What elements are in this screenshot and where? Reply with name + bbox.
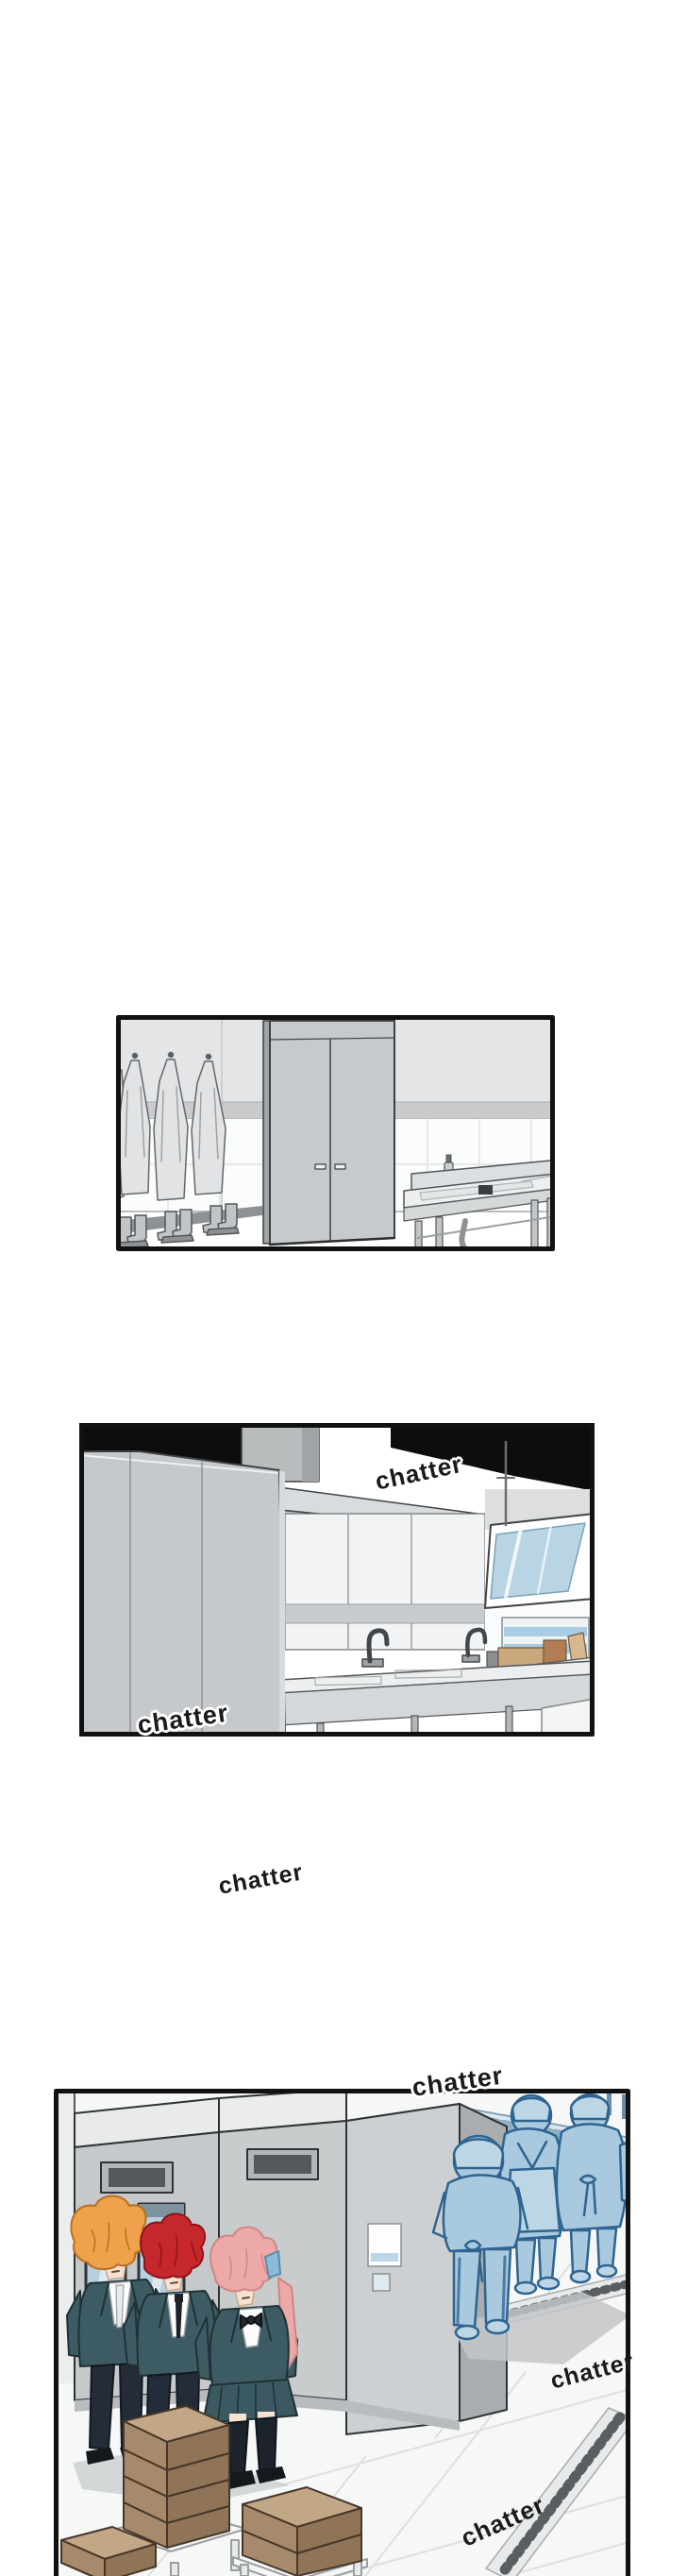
transom-window [485, 1514, 595, 1608]
comic-page: chatter chatter chatter chatter chatter … [0, 0, 687, 2576]
panel-3-artwork [54, 2089, 630, 2576]
sfx-chatter-between-panels: chatter [217, 1860, 305, 1898]
panel-2-artwork [79, 1423, 595, 1737]
panel-1 [116, 1015, 555, 1251]
left-cabinet [79, 1451, 285, 1737]
kitchen-cabinets [285, 1514, 485, 1650]
panel-3 [54, 2089, 630, 2576]
hanging-aprons [116, 1053, 226, 1201]
storage-cabinet [263, 1021, 394, 1245]
panel-2 [79, 1423, 595, 1737]
panel-1-artwork [116, 1015, 555, 1251]
